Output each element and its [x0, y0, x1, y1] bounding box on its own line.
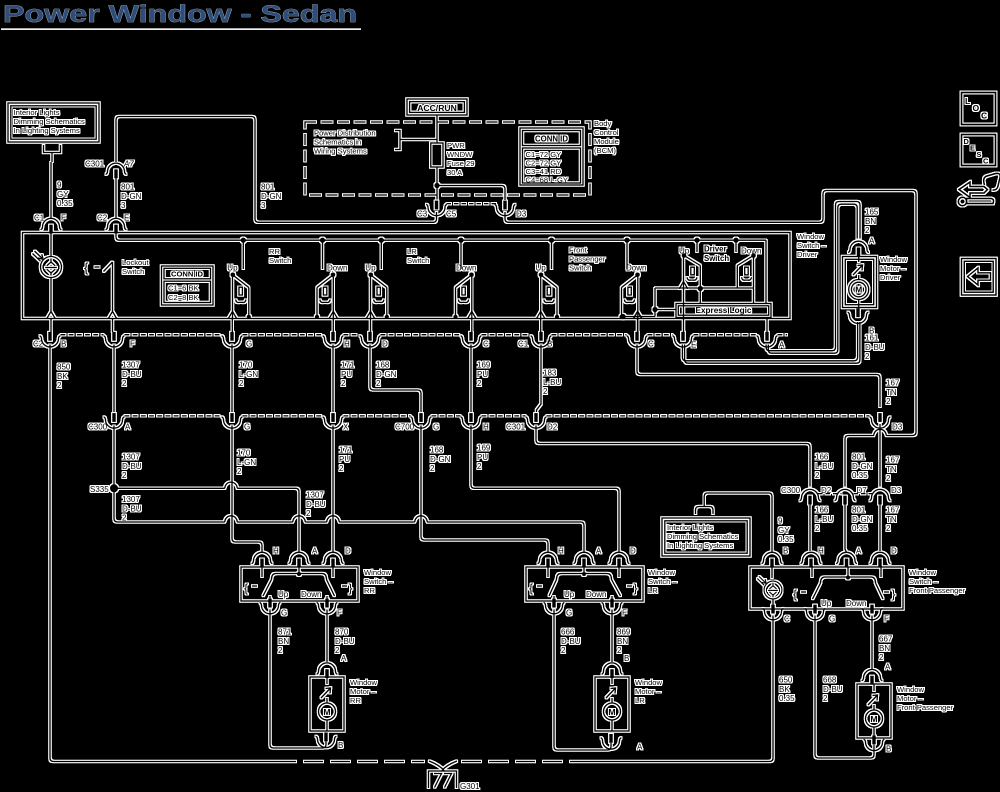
svg-text:C2=8 BK: C2=8 BK [168, 293, 199, 302]
svg-text:D2: D2 [547, 423, 558, 432]
svg-text:Driver: Driver [704, 245, 727, 254]
svg-text:B: B [783, 547, 788, 556]
svg-text:B: B [869, 327, 874, 336]
svg-text:E: E [124, 214, 129, 223]
svg-text:161D-BU2: 161D-BU2 [865, 334, 885, 362]
svg-text:Down: Down [846, 599, 866, 608]
svg-text:Window: Window [635, 678, 663, 687]
svg-text:G: G [829, 615, 835, 624]
svg-text:CONN ID: CONN ID [171, 270, 204, 279]
svg-text:C: C [983, 157, 989, 166]
svg-text:869BN2: 869BN2 [617, 628, 631, 656]
svg-text:C2: C2 [33, 340, 44, 349]
svg-text:H: H [483, 423, 489, 432]
svg-text:168D-GN2: 168D-GN2 [430, 446, 451, 474]
svg-text:Module: Module [594, 137, 619, 146]
svg-text:S335: S335 [90, 485, 109, 494]
svg-text:Passenger: Passenger [569, 255, 606, 264]
svg-text:LR: LR [407, 247, 417, 256]
svg-text:C300: C300 [781, 486, 801, 495]
svg-text:WNDW: WNDW [447, 150, 473, 159]
svg-text:M: M [608, 707, 615, 717]
svg-text:LR: LR [635, 696, 645, 705]
svg-text:1307D-BU2: 1307D-BU2 [306, 491, 326, 519]
svg-text:Interior Lights: Interior Lights [667, 523, 713, 532]
svg-text:L: L [965, 96, 970, 106]
svg-text:D: D [964, 137, 970, 146]
svg-text:H: H [273, 547, 279, 556]
svg-text:S: S [977, 150, 982, 159]
svg-text:H: H [558, 547, 564, 556]
svg-text:{: { [84, 260, 89, 275]
svg-text:ACC/RUN: ACC/RUN [417, 103, 457, 113]
svg-text:LR: LR [648, 586, 658, 595]
svg-text:D: D [891, 547, 897, 556]
svg-text:Down: Down [301, 590, 321, 599]
svg-text:}: } [349, 581, 353, 595]
svg-text:Driver: Driver [797, 250, 818, 259]
svg-text:A: A [856, 547, 862, 556]
svg-text:C4=68 L-GY: C4=68 L-GY [526, 176, 568, 185]
svg-text:C1=6 BK: C1=6 BK [168, 284, 199, 293]
svg-text:In Lighting Systems: In Lighting Systems [667, 541, 733, 550]
svg-text:C1: C1 [518, 340, 529, 349]
svg-text:D: D [345, 547, 351, 556]
svg-text:871BN2: 871BN2 [278, 628, 292, 656]
svg-text:Schematics in: Schematics in [314, 138, 361, 147]
svg-text:Driver: Driver [880, 273, 901, 282]
svg-text:F: F [622, 609, 627, 618]
svg-text:666D-BU2: 666D-BU2 [561, 628, 581, 656]
svg-text:F: F [884, 615, 889, 624]
svg-text:D: D [630, 547, 636, 556]
svg-text:668D-BU2: 668D-BU2 [823, 676, 843, 704]
svg-text:Down: Down [586, 590, 606, 599]
svg-text:Switch: Switch [569, 264, 591, 273]
svg-text:1307D-BU2: 1307D-BU2 [122, 453, 142, 481]
svg-text:168D-GN2: 168D-GN2 [376, 361, 397, 389]
svg-text:Body: Body [594, 119, 612, 128]
svg-text:30 A: 30 A [447, 168, 463, 177]
svg-text:B: B [338, 741, 343, 750]
svg-text:C3: C3 [417, 210, 428, 219]
svg-text:(BCM): (BCM) [594, 146, 616, 155]
svg-text:C2: C2 [97, 214, 108, 223]
svg-text:C: C [483, 340, 489, 349]
svg-text:G: G [566, 609, 572, 618]
svg-text:Switch: Switch [122, 267, 144, 276]
svg-text:C301: C301 [85, 160, 105, 169]
svg-text:1307D-BU2: 1307D-BU2 [122, 361, 142, 389]
svg-text:D: D [382, 340, 388, 349]
svg-text:Front Passenger: Front Passenger [909, 586, 966, 595]
svg-text:171PU2: 171PU2 [341, 361, 355, 389]
svg-text:Dimming Schematics: Dimming Schematics [667, 532, 739, 541]
svg-text:RR: RR [269, 247, 280, 256]
svg-text:C: C [648, 340, 654, 349]
svg-text:Motor –: Motor – [880, 264, 907, 273]
svg-text:H: H [344, 340, 350, 349]
svg-text:Down: Down [741, 247, 761, 256]
svg-text:167TN2: 167TN2 [886, 456, 900, 484]
svg-text:Window: Window [797, 232, 825, 241]
svg-text:Down: Down [327, 264, 347, 273]
svg-text:Up: Up [278, 590, 289, 599]
svg-text:M: M [855, 285, 862, 295]
svg-text:G: G [433, 423, 439, 432]
svg-text:D3: D3 [892, 423, 903, 432]
svg-text:650BK0.35: 650BK0.35 [779, 676, 795, 704]
svg-text:Window: Window [880, 255, 908, 264]
svg-text:Up: Up [365, 264, 376, 273]
svg-text:B: B [547, 340, 552, 349]
svg-text:801D-GN3: 801D-GN3 [121, 183, 142, 211]
svg-text:E: E [691, 341, 696, 350]
svg-text:G: G [244, 423, 250, 432]
svg-text:A: A [341, 654, 347, 663]
svg-text:{: { [244, 581, 248, 595]
svg-text:801D-GN0.35: 801D-GN0.35 [852, 506, 873, 534]
svg-text:165BN2: 165BN2 [865, 208, 879, 236]
svg-text:A: A [125, 423, 131, 432]
svg-text:850BK2: 850BK2 [57, 363, 71, 391]
svg-text:9GY0.35: 9GY0.35 [57, 181, 73, 209]
svg-text:A: A [779, 341, 785, 350]
svg-text:C700: C700 [395, 423, 415, 432]
svg-text:166L-BU2: 166L-BU2 [815, 453, 833, 481]
svg-text:G301: G301 [460, 782, 480, 791]
svg-text:B: B [61, 340, 66, 349]
svg-text:F: F [61, 214, 66, 223]
svg-text:C: C [981, 111, 987, 121]
svg-text:Switch: Switch [407, 256, 429, 265]
svg-text:Down: Down [456, 264, 476, 273]
svg-text:A7: A7 [123, 160, 134, 169]
svg-text:F: F [337, 609, 342, 618]
svg-text:Control: Control [594, 128, 619, 137]
svg-text:170L-GN2: 170L-GN2 [237, 449, 256, 477]
svg-text:X: X [343, 423, 349, 432]
svg-text:667BN2: 667BN2 [879, 635, 893, 663]
svg-text:Interior Lights: Interior Lights [14, 108, 60, 117]
svg-text:Front Passenger: Front Passenger [897, 703, 954, 712]
svg-text:Window: Window [897, 685, 925, 694]
svg-text:801D-GN0.35: 801D-GN0.35 [852, 453, 873, 481]
svg-text:A: A [596, 547, 602, 556]
svg-text:1307D-BU2: 1307D-BU2 [122, 495, 142, 523]
svg-text:870D-BU2: 870D-BU2 [335, 628, 355, 656]
svg-text:Fuse 29: Fuse 29 [447, 159, 474, 168]
svg-text:166L-BU2: 166L-BU2 [815, 506, 833, 534]
svg-text:C1: C1 [34, 214, 45, 223]
svg-text:M: M [323, 707, 330, 717]
svg-text:In Lighting Systems: In Lighting Systems [14, 126, 80, 135]
svg-text:{: { [793, 587, 797, 601]
svg-text:Express Logic: Express Logic [696, 306, 752, 315]
svg-text:CONN ID: CONN ID [535, 135, 568, 144]
svg-text:Lockout: Lockout [122, 258, 149, 267]
svg-text:A: A [312, 547, 318, 556]
svg-text:Wiring Systems: Wiring Systems [314, 147, 367, 156]
svg-text:801D-GN3: 801D-GN3 [261, 183, 282, 211]
svg-text:C: C [784, 615, 790, 624]
svg-text:Switch: Switch [704, 254, 729, 263]
svg-text:Power Distribution: Power Distribution [314, 129, 376, 138]
svg-text:Power Window - Sedan: Power Window - Sedan [3, 1, 357, 28]
svg-text:F: F [130, 340, 135, 349]
svg-text:G: G [281, 609, 287, 618]
svg-text:Up: Up [564, 590, 575, 599]
svg-text:Switch –: Switch – [797, 241, 826, 250]
svg-text:Up: Up [536, 264, 547, 273]
svg-text:RR: RR [350, 696, 361, 705]
svg-text:Up: Up [227, 264, 238, 273]
svg-text:O: O [973, 103, 980, 113]
svg-text:Switch –: Switch – [909, 577, 938, 586]
svg-text:PWR: PWR [447, 141, 465, 150]
svg-text:B: B [624, 654, 629, 663]
svg-text:170L-GN2: 170L-GN2 [239, 361, 258, 389]
svg-text:{: { [529, 581, 533, 595]
svg-text:A: A [637, 743, 643, 752]
svg-text:9GY0.35: 9GY0.35 [778, 517, 794, 545]
svg-text:Motor –: Motor – [350, 687, 377, 696]
svg-text:Front: Front [569, 246, 588, 255]
svg-text:Switch: Switch [269, 256, 291, 265]
svg-text:Down: Down [626, 264, 646, 273]
svg-text:Window: Window [648, 568, 676, 577]
svg-text:D3: D3 [516, 210, 527, 219]
svg-text:B: B [886, 745, 891, 754]
svg-text:Up: Up [821, 599, 832, 608]
svg-text:Switch –: Switch – [648, 577, 677, 586]
svg-text:Motor –: Motor – [635, 687, 662, 696]
svg-text:Window: Window [350, 678, 378, 687]
svg-text:E: E [970, 144, 975, 153]
svg-text:G: G [246, 340, 252, 349]
svg-text:Switch –: Switch – [364, 577, 393, 586]
svg-text:RR: RR [364, 586, 375, 595]
svg-text:167TN2: 167TN2 [886, 506, 900, 534]
svg-text:183L-BU2: 183L-BU2 [543, 369, 561, 397]
svg-text:M: M [870, 714, 877, 724]
svg-text:C301: C301 [506, 423, 526, 432]
svg-text:}: } [892, 587, 896, 601]
svg-text:H: H [818, 547, 824, 556]
svg-text:169PU2: 169PU2 [477, 361, 491, 389]
svg-text:Window: Window [909, 568, 937, 577]
svg-text:C5: C5 [446, 210, 457, 219]
svg-text:169PU2: 169PU2 [477, 444, 491, 472]
svg-text:A: A [885, 663, 891, 672]
svg-text:C300: C300 [88, 423, 108, 432]
svg-text:D3: D3 [891, 486, 902, 495]
svg-text:A: A [869, 237, 875, 246]
svg-text:Motor –: Motor – [897, 694, 924, 703]
svg-text:167TN2: 167TN2 [886, 379, 900, 407]
svg-text:}: } [634, 581, 638, 595]
svg-text:Window: Window [364, 568, 392, 577]
svg-text:Dimming Schematics: Dimming Schematics [14, 117, 86, 126]
svg-text:171PU2: 171PU2 [339, 446, 353, 474]
